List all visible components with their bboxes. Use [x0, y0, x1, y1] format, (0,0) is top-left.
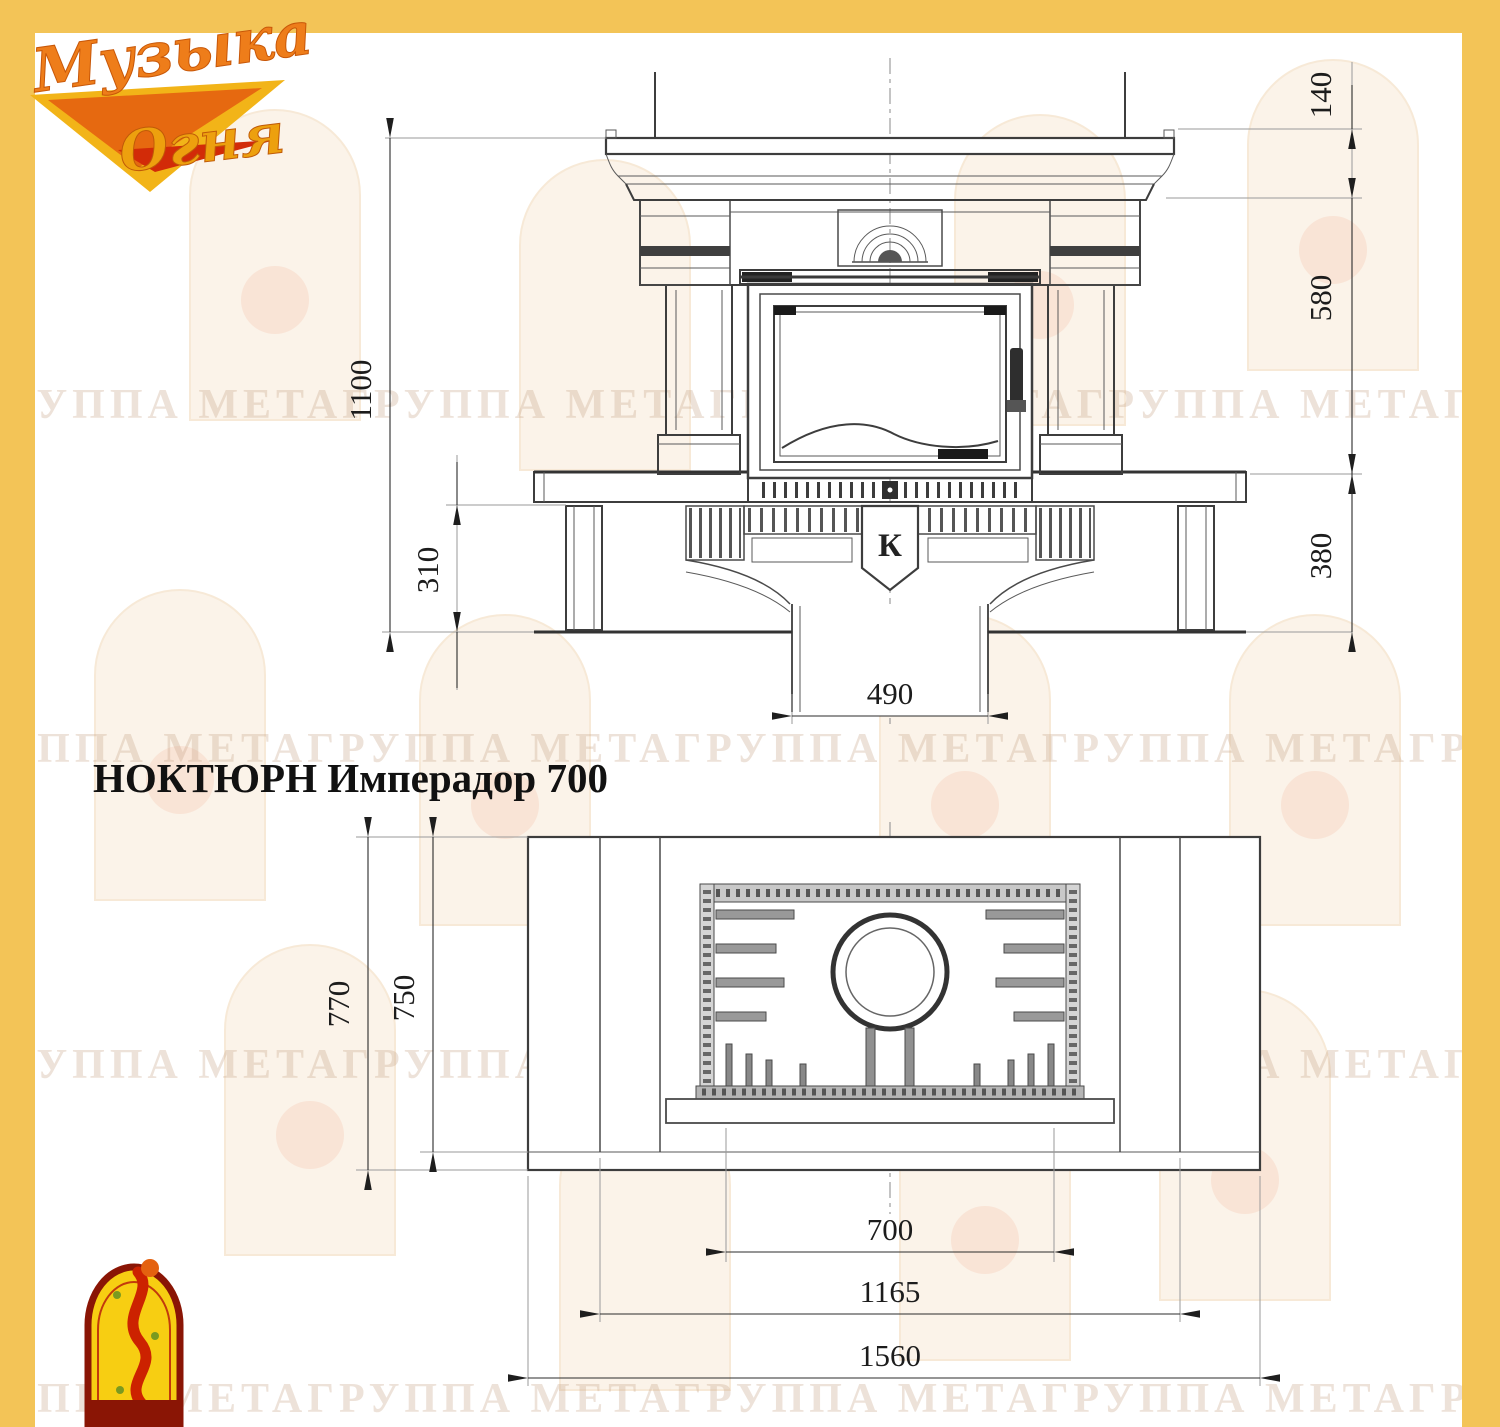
- door-handle: [1010, 348, 1023, 406]
- dim-podium-height: 380: [1303, 474, 1352, 632]
- flue-outlet-circle: [833, 915, 947, 1029]
- base-pillar-left: [566, 506, 602, 630]
- plan-hearth-slab: [666, 1099, 1114, 1123]
- svg-text:490: 490: [867, 676, 914, 711]
- base-pillar-right: [1178, 506, 1214, 630]
- svg-text:1560: 1560: [859, 1338, 921, 1373]
- svg-text:750: 750: [386, 975, 421, 1022]
- frame-right: [1462, 0, 1500, 1427]
- watermark-arch-pattern: [95, 60, 1418, 1390]
- watermark-text-row: ГРУППА МЕТАГРУППА МЕТАГРУППА МЕТАГРУППА …: [0, 1376, 1500, 1422]
- svg-text:770: 770: [321, 981, 356, 1028]
- shield-emblem: К: [862, 506, 918, 590]
- arch-flame-logo: [85, 1259, 183, 1427]
- svg-text:700: 700: [867, 1212, 914, 1247]
- watermark-layer: ГРУППА МЕТАГРУППА МЕТАГРУППА МЕТАГРУППА …: [0, 60, 1500, 1422]
- svg-text:1100: 1100: [343, 360, 378, 421]
- vent-grille: [748, 478, 1032, 502]
- catalog-page: ГРУППА МЕТАГРУППА МЕТАГРУППА МЕТАГРУППА …: [0, 0, 1500, 1427]
- shield-letter: К: [878, 528, 902, 564]
- frame-left: [0, 0, 35, 1427]
- svg-text:1165: 1165: [860, 1274, 921, 1309]
- baluster-block-left: [686, 506, 744, 560]
- svg-text:310: 310: [410, 547, 445, 594]
- svg-text:140: 140: [1303, 72, 1338, 119]
- firebox-insert: [740, 270, 1040, 502]
- svg-text:380: 380: [1303, 533, 1338, 580]
- baluster-block-right: [1036, 506, 1094, 560]
- page-title: НОКТЮРН Имперадор 700: [93, 755, 608, 801]
- drawing-sheet: ГРУППА МЕТАГРУППА МЕТАГРУППА МЕТАГРУППА …: [0, 0, 1500, 1427]
- svg-text:580: 580: [1303, 275, 1338, 322]
